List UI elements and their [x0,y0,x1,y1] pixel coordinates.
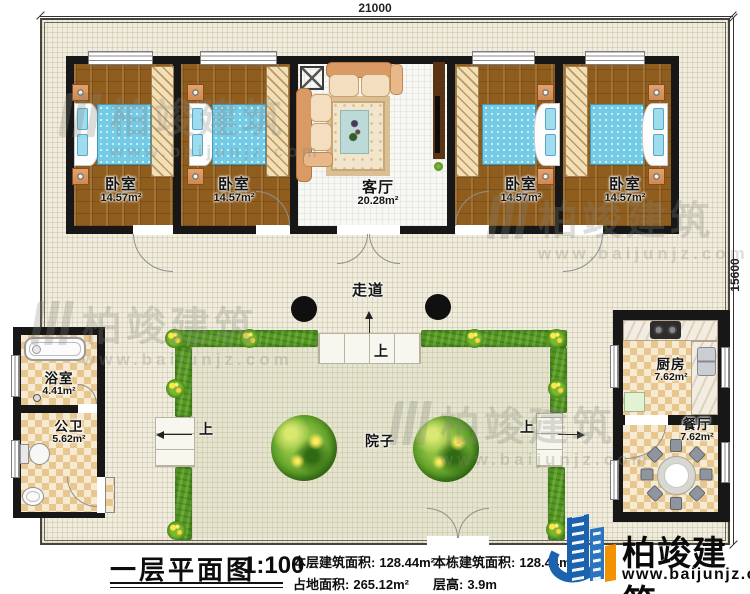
wardrobe [266,66,289,177]
bathroom-window [11,355,20,397]
wardrobe [456,66,479,177]
sofa-cushion [310,123,332,151]
flower-bush [546,520,565,539]
stat-floor-area: 本层建筑面积:128.44m² [293,552,435,571]
steps-up-label-right: 上 [520,417,534,437]
bed-pillow [653,134,664,156]
steps-up-label-left: 上 [199,419,213,439]
bedroom1-label: 卧室 14.57m² [85,177,157,204]
flower-bush [465,329,484,348]
toilet-door-step [105,477,115,513]
bedroom3-label: 卧室 14.57m² [485,177,557,204]
steps-right-arrow [558,434,578,435]
dimension-width-label: 21000 [340,1,410,15]
courtyard-label: 院子 [352,434,408,449]
bed-pillow [545,108,556,130]
corridor-label: 走道 [348,283,388,299]
sofa-cushion [310,94,332,122]
bathroom-door-opening [78,404,97,413]
steps-right [536,413,563,467]
dining-window-right [721,442,730,483]
dining-table-top [664,463,689,488]
stat-value: 3.9m [467,577,497,592]
title-underline-2 [110,587,283,588]
nightstand [537,84,554,101]
bathtub [24,337,86,361]
flower-bush [166,379,185,398]
toilet-bowl [29,443,50,465]
stat-value: 128.44m² [379,555,435,570]
toilet-tank [20,444,29,464]
bedroom2-door-opening [256,225,290,235]
bed-pillow [77,134,88,156]
brand-logo-building [590,527,604,581]
bed-mattress [212,104,266,165]
tv-screen [435,96,440,153]
room-name: 卧室 [85,177,157,193]
wash-basin [22,487,44,506]
steps-center-arrow [369,317,370,333]
steps-left [155,417,195,467]
stat-storey-height: 层高:3.9m [433,574,497,593]
kitchen-appliance [624,392,645,412]
room-area: 7.62m² [640,372,702,383]
room-area: 5.62m² [37,434,101,445]
dimension-width-line [40,16,733,17]
room-name: 卧室 [485,177,557,193]
room-area: 14.57m² [485,193,557,205]
kitchen-window-right [721,347,730,388]
dining-label: 餐厅 7.62m² [668,418,726,443]
wardrobe [565,66,588,177]
dining-chair [641,469,654,481]
toilet-label: 公卫 5.62m² [37,420,101,445]
steps-center-arrowhead [365,311,373,319]
bed-pillow [192,108,203,130]
room-area: 20.28m² [342,196,414,208]
room-name: 院子 [352,434,408,449]
room-name: 走道 [348,283,388,299]
flower-bush [165,329,184,348]
sofa-cushion [361,74,390,97]
room-area: 14.57m² [85,193,157,205]
stove [650,321,681,339]
dining-chair [670,497,682,510]
nightstand [72,84,89,101]
stat-label: 本层建筑面积: [293,555,375,570]
courtyard-tree [271,415,337,481]
steps-up-label-center: 上 [374,341,388,361]
sofa-armrest [303,152,333,167]
bed-pillow [653,108,664,130]
dining-window-left [610,460,619,500]
stat-value: 265.12m² [353,577,409,592]
living-label: 客厅 20.28m² [342,180,414,207]
flower-bush [548,379,567,398]
bedroom2-label: 卧室 14.57m² [198,177,270,204]
porch-column [425,294,451,320]
bathroom-label: 浴室 4.41m² [27,372,91,397]
bed-pillow [545,134,556,156]
brand-logo-building-orange [605,544,616,582]
toilet-window [11,440,20,478]
title-underline [110,582,283,584]
flower-bush [547,329,566,348]
bed-pillow [192,134,203,156]
flower-bush [240,329,259,348]
coffee-table [340,110,369,154]
kitchen-label: 厨房 7.62m² [640,358,702,383]
floor-plan-canvas: 21000 15600 上 上 上 [0,0,750,594]
bed-mattress [97,104,151,165]
brand-logo-building [567,514,589,582]
corner-cabinet [300,66,324,90]
stat-label: 本栋建筑面积: [433,555,515,570]
dining-chair [700,469,713,481]
bedroom1-window [88,51,153,65]
stat-label: 层高: [433,577,463,592]
hedge-top-right [421,330,567,347]
room-name: 卧室 [589,177,661,193]
bedroom2-window [200,51,277,65]
steps-left-arrowhead [156,431,164,439]
porch-column [291,296,317,322]
stat-land-area: 占地面积:265.12m² [293,574,409,593]
room-area: 14.57m² [589,193,661,205]
bed-mattress [482,104,536,165]
stat-label: 占地面积: [293,577,349,592]
courtyard-tree [413,416,479,482]
room-name: 卧室 [198,177,270,193]
steps-center [318,333,421,364]
kitchen-door-opening [625,415,668,425]
flower-bush [167,521,186,540]
room-name: 客厅 [342,180,414,196]
bedroom3-door-opening [455,225,489,235]
nightstand [648,84,665,101]
room-area: 14.57m² [198,193,270,205]
steps-right-arrowhead [577,431,585,439]
sofa-cushion [329,74,359,97]
wardrobe [151,66,174,177]
bed-mattress [590,104,644,165]
bedroom3-window [472,51,535,65]
toilet-door-opening [97,477,105,513]
plant-pot [434,162,443,171]
kitchen-window-left [610,345,619,388]
bed-pillow [77,108,88,130]
brand-website: www.baijunjz.com [622,566,750,584]
bedroom4-window [585,51,645,65]
steps-left-arrow [162,434,192,435]
sofa-armrest [390,64,403,95]
bedroom4-label: 卧室 14.57m² [589,177,661,204]
dimension-height-label: 15600 [728,252,742,298]
room-area: 7.62m² [668,432,726,443]
room-area: 4.41m² [27,386,91,397]
nightstand [187,84,204,101]
